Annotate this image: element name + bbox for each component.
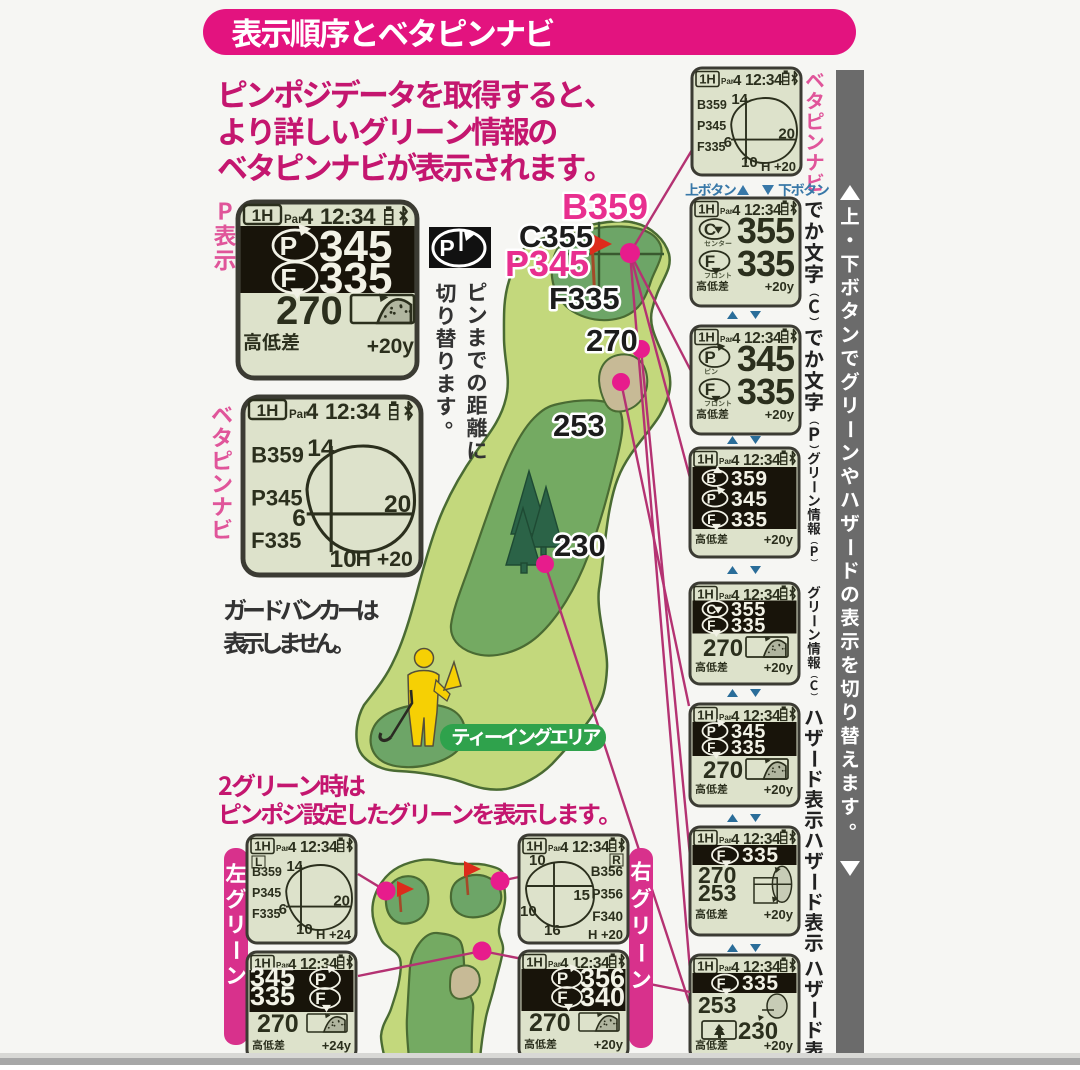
svg-text:1H: 1H [697,587,714,602]
svg-text:335: 335 [742,972,779,995]
svg-text:P: P [315,970,326,989]
svg-text:270: 270 [257,1010,299,1038]
svg-text:4: 4 [560,839,569,856]
svg-text:P345: P345 [505,243,589,284]
svg-text:Par: Par [548,960,561,969]
svg-text:4: 4 [301,204,314,229]
svg-text:C: C [706,602,716,617]
svg-text:1H: 1H [252,206,274,225]
svg-text:253: 253 [553,408,605,443]
svg-text:10: 10 [330,546,357,573]
svg-text:340: 340 [580,982,625,1012]
svg-text:335: 335 [731,509,768,532]
svg-text:P: P [707,491,716,506]
svg-text:270: 270 [703,757,743,784]
svg-text:F340: F340 [592,909,623,924]
svg-text:+20y: +20y [764,660,794,675]
svg-text:H +20: H +20 [588,927,623,942]
svg-text:270: 270 [703,635,743,662]
svg-text:B359: B359 [251,442,304,467]
svg-text:270: 270 [529,1009,571,1037]
svg-text:15: 15 [573,887,590,904]
svg-text:Par: Par [719,964,732,973]
svg-text:Par: Par [719,457,732,466]
svg-text:R: R [612,853,621,867]
svg-text:12:34: 12:34 [300,839,338,856]
svg-text:10: 10 [741,154,758,171]
svg-text:10: 10 [296,921,313,938]
svg-text:B359: B359 [697,98,727,112]
svg-text:+20y: +20y [764,907,794,922]
svg-text:H +20: H +20 [761,159,796,174]
svg-text:12:34: 12:34 [572,839,610,856]
svg-text:P: P [704,348,715,367]
svg-text:1H: 1H [697,708,714,723]
svg-text:P: P [557,969,568,988]
svg-text:P: P [707,724,716,739]
svg-text:H +24: H +24 [316,927,352,942]
svg-text:16: 16 [544,922,561,939]
svg-text:335: 335 [742,844,779,867]
svg-text:270: 270 [276,289,343,333]
svg-text:4: 4 [288,839,297,856]
svg-text:+24y: +24y [322,1038,352,1053]
svg-text:C: C [704,220,716,239]
svg-text:+20y: +20y [764,1038,794,1053]
svg-text:+20y: +20y [765,407,795,422]
svg-text:10: 10 [529,852,546,869]
svg-text:1H: 1H [257,401,279,420]
svg-text:Par: Par [719,592,732,601]
svg-text:20: 20 [333,893,350,910]
svg-text:+20y: +20y [594,1037,624,1052]
svg-text:253: 253 [698,992,736,1018]
svg-text:H +20: H +20 [356,548,413,571]
svg-text:+20y: +20y [764,532,794,547]
svg-text:Par: Par [719,836,732,845]
svg-text:+20y: +20y [367,335,415,358]
svg-text:20: 20 [778,126,795,143]
svg-text:4: 4 [733,72,742,89]
svg-text:Par: Par [720,335,733,344]
svg-text:12:34: 12:34 [743,452,781,469]
svg-text:1H: 1H [526,955,543,970]
svg-text:14: 14 [731,91,748,108]
svg-text:F335: F335 [697,140,726,154]
svg-text:1H: 1H [697,452,714,467]
svg-text:10: 10 [520,903,537,920]
svg-text:B: B [706,471,716,486]
svg-text:335: 335 [737,371,795,412]
svg-text:1H: 1H [254,839,271,854]
svg-text:12:34: 12:34 [745,72,783,89]
svg-text:Par: Par [548,844,561,853]
svg-text:P345: P345 [251,485,302,510]
svg-text:1H: 1H [697,831,714,846]
svg-text:+20y: +20y [765,279,795,294]
svg-text:1H: 1H [698,202,715,217]
svg-text:12:34: 12:34 [325,399,381,424]
svg-text:1H: 1H [697,959,714,974]
svg-text:L: L [255,855,262,869]
svg-text:F335: F335 [252,907,281,921]
svg-text:Par: Par [276,844,289,853]
svg-text:P356: P356 [591,887,623,902]
svg-text:230: 230 [554,528,606,563]
svg-text:335: 335 [731,737,766,759]
svg-text:14: 14 [286,858,303,875]
svg-text:P345: P345 [697,119,726,133]
svg-text:P345: P345 [252,886,281,900]
svg-text:Par: Par [721,77,734,86]
svg-text:335: 335 [250,981,295,1011]
svg-text:14: 14 [307,435,335,462]
svg-text:4: 4 [306,399,319,424]
svg-text:+20y: +20y [764,782,794,797]
svg-text:F335: F335 [549,281,620,316]
svg-text:P: P [280,231,298,261]
svg-text:F335: F335 [251,528,301,553]
svg-text:1H: 1H [698,330,715,345]
svg-text:20: 20 [384,491,411,518]
svg-text:335: 335 [737,243,795,284]
svg-text:253: 253 [698,880,736,906]
svg-text:4: 4 [731,452,740,469]
svg-text:335: 335 [731,615,766,637]
svg-text:P: P [439,235,454,261]
svg-text:1H: 1H [699,72,716,87]
svg-text:270: 270 [586,323,638,358]
svg-text:Par: Par [720,207,733,216]
